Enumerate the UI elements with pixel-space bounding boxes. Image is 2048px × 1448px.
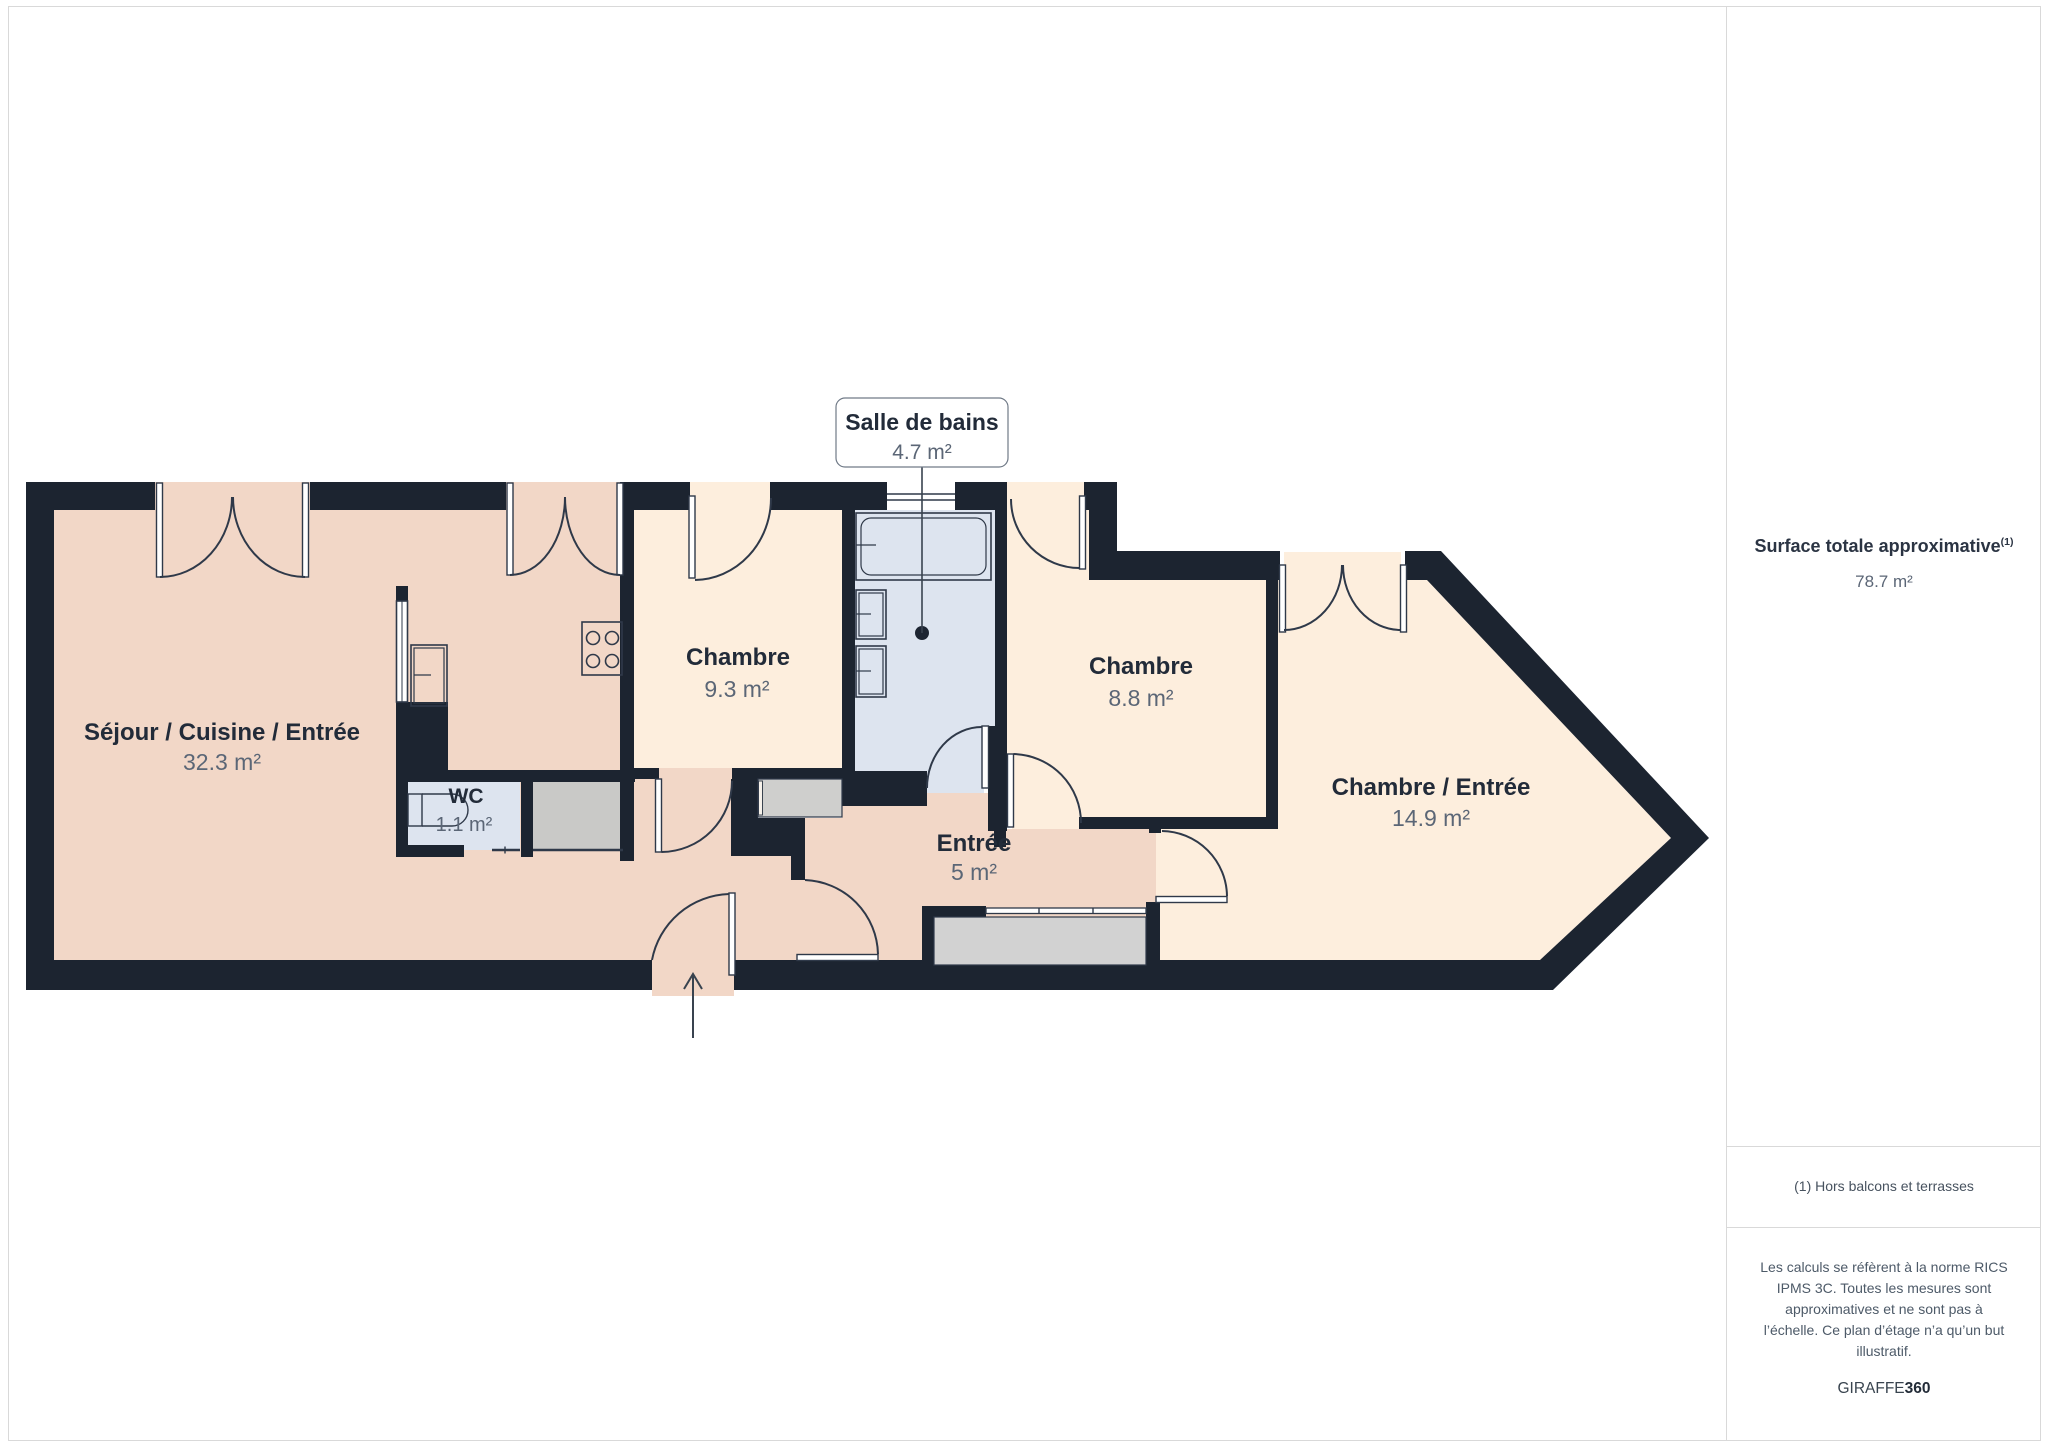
svg-text:Les calculs se réfèrent à la n: Les calculs se réfèrent à la norme RICS	[1760, 1259, 2007, 1275]
svg-text:IPMS 3C. Toutes les mesures so: IPMS 3C. Toutes les mesures sont	[1777, 1280, 1992, 1296]
svg-text:32.3 m²: 32.3 m²	[183, 749, 261, 775]
svg-text:GIRAFFE360: GIRAFFE360	[1837, 1380, 1930, 1397]
svg-text:approximatives et ne sont pas: approximatives et ne sont pas à	[1785, 1301, 1983, 1317]
svg-text:WC: WC	[449, 785, 484, 808]
svg-text:(1) Hors balcons et terrasses: (1) Hors balcons et terrasses	[1794, 1178, 1974, 1194]
svg-text:5 m²: 5 m²	[951, 859, 997, 885]
svg-text:4.7 m²: 4.7 m²	[892, 441, 952, 464]
svg-text:78.7 m²: 78.7 m²	[1855, 572, 1913, 591]
svg-text:Chambre: Chambre	[1089, 653, 1193, 680]
svg-text:Entrée: Entrée	[937, 830, 1012, 857]
svg-text:l’échelle. Ce plan d’étage n’a: l’échelle. Ce plan d’étage n’a qu’un but	[1764, 1322, 2005, 1338]
svg-text:14.9 m²: 14.9 m²	[1392, 805, 1470, 831]
svg-text:8.8 m²: 8.8 m²	[1108, 685, 1174, 711]
svg-text:Chambre: Chambre	[686, 644, 790, 671]
svg-text:illustratif.: illustratif.	[1856, 1343, 1911, 1359]
svg-text:Séjour / Cuisine / Entrée: Séjour / Cuisine / Entrée	[84, 719, 360, 746]
svg-text:Surface totale approximative(1: Surface totale approximative(1)	[1755, 536, 2014, 556]
svg-text:Salle de bains: Salle de bains	[845, 409, 998, 435]
svg-text:Chambre / Entrée: Chambre / Entrée	[1332, 774, 1531, 801]
svg-text:1.1 m²: 1.1 m²	[436, 814, 493, 836]
svg-text:9.3 m²: 9.3 m²	[704, 676, 770, 702]
